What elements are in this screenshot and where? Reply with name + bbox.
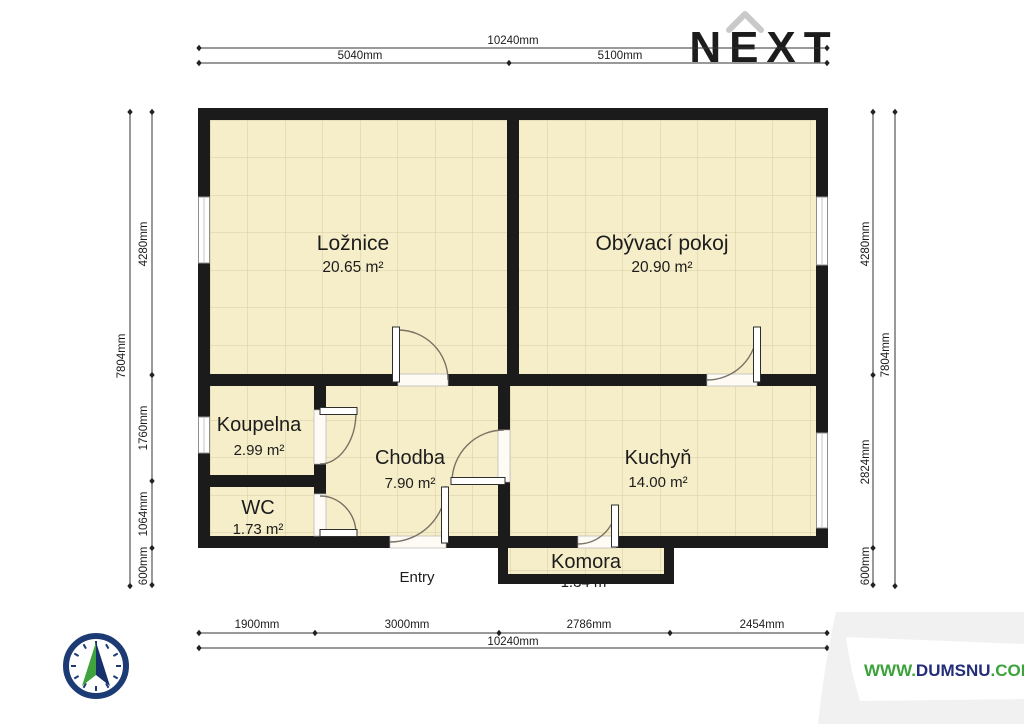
floor-plan-canvas: NEXT [0, 0, 1024, 724]
dim-left-seg-3: 1064mm [138, 492, 150, 537]
door-opening [314, 410, 326, 464]
door-opening [578, 536, 616, 548]
site-url: WWW.DUMSNU.COM [864, 661, 1024, 680]
wall-segment [498, 482, 510, 536]
wall-segment [210, 374, 398, 386]
dim-top-seg-2: 5100mm [598, 50, 643, 62]
wall-segment [198, 263, 210, 417]
dim-bottom-total: 10240mm [487, 636, 538, 648]
wall-segment [314, 386, 326, 410]
wall-segment [448, 374, 707, 386]
room-area-loznice: 20.65 m² [322, 259, 383, 276]
wall-segment [198, 453, 210, 548]
wall-segment [446, 536, 578, 548]
floor-plan-page: NEXT [0, 0, 1024, 724]
compass-icon [66, 636, 126, 696]
room-name-wc: WC [241, 497, 274, 519]
dim-bottom-seg-3: 2786mm [567, 619, 612, 631]
dim-top-seg-1: 5040mm [338, 50, 383, 62]
dim-bottom-seg-4: 2454mm [740, 619, 785, 631]
site-url-www: WWW. [864, 661, 916, 680]
room-name-kuchyn: Kuchyň [625, 447, 692, 469]
door-opening [498, 430, 510, 482]
room-name-obyvaci-pokoj: Obývací pokoj [595, 232, 728, 255]
room-area-wc: 1.73 m² [233, 521, 284, 538]
door-opening [398, 374, 448, 386]
room-area-obyvaci-pokoj: 20.90 m² [631, 259, 692, 276]
dim-right-seg-1: 4280mm [860, 222, 872, 267]
room-name-loznice: Ložnice [317, 232, 389, 255]
room-area-kuchyn: 14.00 m² [628, 474, 687, 491]
wall-segment [816, 108, 828, 197]
window [199, 417, 210, 453]
site-url-tld: .COM [991, 661, 1024, 680]
dim-left-seg-4: 600mm [138, 547, 150, 585]
dim-right-seg-2: 2824mm [860, 440, 872, 485]
wall-segment [198, 536, 390, 548]
window [817, 433, 828, 528]
wall-segment [757, 374, 816, 386]
dim-left-total: 7804mm [116, 334, 128, 379]
dim-left-seg-2: 1760mm [138, 406, 150, 451]
dim-bottom-seg-1: 1900mm [235, 619, 280, 631]
wall-segment [507, 120, 519, 374]
wall-segment [498, 386, 510, 430]
room-name-chodba: Chodba [375, 447, 446, 469]
window [817, 197, 828, 265]
room-area-koupelna: 2.99 m² [234, 442, 285, 459]
wall-segment [210, 475, 326, 487]
dim-right-seg-3: 600mm [860, 547, 872, 585]
dim-left-seg-1: 4280mm [138, 222, 150, 267]
room-name-komora: Komora [551, 551, 622, 573]
dim-bottom-seg-2: 3000mm [385, 619, 430, 631]
dim-right-total: 7804mm [880, 333, 892, 378]
room-area-komora: 1.34 m² [561, 574, 612, 591]
wall-segment [198, 108, 210, 197]
wall-segment [198, 108, 828, 120]
wall-segment [816, 265, 828, 433]
window [199, 197, 210, 263]
entry-label: Entry [399, 569, 435, 586]
room-area-chodba: 7.90 m² [385, 475, 436, 492]
site-watermark: WWW.DUMSNU.COM [818, 612, 1024, 724]
site-url-name: DUMSNU [916, 661, 991, 680]
wall-segment [616, 536, 828, 548]
dim-top-total: 10240mm [487, 35, 538, 47]
room-name-koupelna: Koupelna [217, 414, 302, 436]
